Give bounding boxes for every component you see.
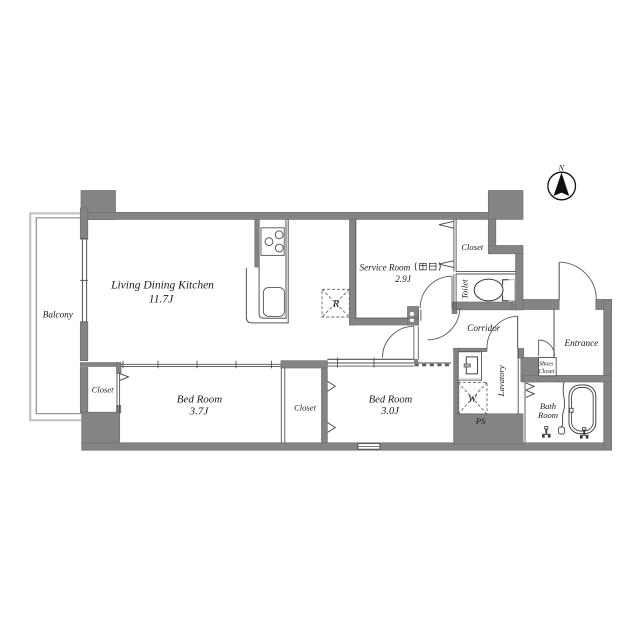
- svg-text:Closet: Closet: [538, 368, 554, 375]
- svg-text:Shoes: Shoes: [539, 361, 554, 368]
- svg-text:N: N: [558, 164, 565, 173]
- svg-text:Closet: Closet: [92, 385, 115, 395]
- svg-text:Corridor: Corridor: [467, 323, 501, 333]
- svg-text:Closet: Closet: [461, 242, 484, 252]
- svg-text:R: R: [332, 299, 339, 310]
- svg-text:Balcony: Balcony: [43, 309, 74, 319]
- svg-text:Room: Room: [537, 410, 558, 420]
- svg-text:Toilet: Toilet: [459, 279, 469, 299]
- svg-text:11.7J: 11.7J: [149, 293, 174, 305]
- svg-text:Living Dining Kitchen: Living Dining Kitchen: [110, 280, 214, 292]
- svg-text:Bed Room: Bed Room: [177, 394, 223, 406]
- svg-text:2.9J: 2.9J: [395, 274, 411, 284]
- svg-text:3.0J: 3.0J: [380, 406, 400, 417]
- svg-text:3.7J: 3.7J: [189, 406, 210, 418]
- svg-text:PS: PS: [475, 416, 486, 426]
- svg-text:Lavatory: Lavatory: [496, 365, 506, 397]
- svg-text:Service Room: Service Room: [360, 263, 411, 273]
- svg-text:Entrance: Entrance: [564, 338, 599, 348]
- svg-text:Bed Room: Bed Room: [369, 395, 413, 406]
- svg-text:Closet: Closet: [294, 403, 317, 413]
